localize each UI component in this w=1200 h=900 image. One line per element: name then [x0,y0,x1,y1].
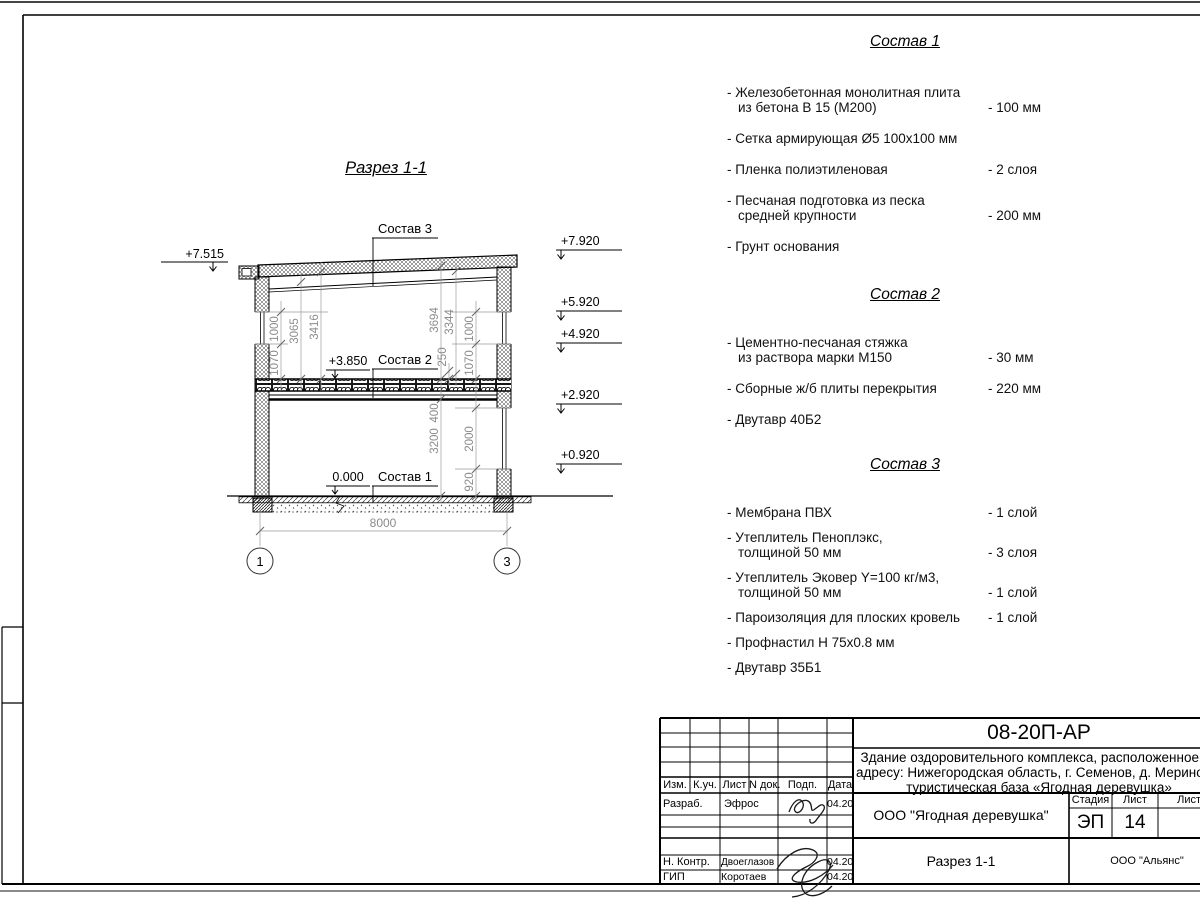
row-nkontr-name: Двоеглазов [721,855,778,870]
dim-400: 400 [429,403,441,422]
spec-item: - Грунт основания [727,239,1075,254]
dim-2000: 2000 [464,426,476,452]
spec2-list: - Цементно-песчаная стяжка из раствора м… [727,335,1075,427]
dim-1000-right: 1000 [464,316,476,342]
titleblock-section-title: Разрез 1-1 [853,838,1069,884]
level-7515: +7.515 [185,247,224,261]
dim-1000-left: 1000 [269,316,281,342]
label-sostav1: Состав 1 [378,469,432,484]
dim-3416: 3416 [309,314,321,340]
dim-250: 250 [437,347,449,366]
level-3850: +3.850 [329,354,368,368]
spec-item: - Пароизоляция для плоских кровель - 1 с… [727,610,1075,625]
roof-slab [239,255,517,292]
signature-gip [777,849,833,897]
col-data: Дата [827,777,853,793]
level-0000: 0.000 [332,470,363,484]
dim-920: 920 [464,472,476,491]
spec1-title: Состав 1 [795,33,1015,51]
spec-item: - Утеплитель Эковер Y=100 кг/м3, толщино… [727,570,1075,600]
titleblock-project-description: Здание оздоровительного комплекса, распо… [853,750,1200,795]
col-ndoc: N док. [749,777,778,793]
titleblock-stage-label: Стадия [1069,793,1112,808]
row-razrab-role: Разраб. [663,793,719,815]
drawing-sheet: 1000 1070 3065 3416 3694 3344 250 1000 1… [0,0,1200,900]
dim-3344: 3344 [444,309,456,335]
dim-span-8000: 8000 [370,516,397,530]
axis-1: 1 [256,554,263,569]
spec-item: - Двутавр 35Б1 [727,660,1075,675]
dim-3694: 3694 [429,307,441,333]
col-podp: Подп. [778,777,827,793]
spec-item: - Железобетонная монолитная плита из бет… [727,85,1075,115]
titleblock-sheet-number: 14 [1112,808,1158,838]
row-razrab-date: 04.20 [827,793,853,815]
drawing-title: Разрез 1-1 [328,159,444,178]
spec-item: - Профнастил Н 75х0.8 мм [727,635,1075,650]
ground-slab [227,496,613,513]
row-gip-date: 04.20 [827,870,853,884]
level-4920: +4.920 [561,327,600,341]
axis-bubbles: 1 3 [247,548,520,574]
level-5920: +5.920 [561,295,600,309]
row-nkontr-role: Н. Контр. [663,855,719,870]
spec-item: - Сборные ж/б плиты перекрытия - 220 мм [727,381,1075,396]
spec-item: - Двутавр 40Б2 [727,412,1075,427]
titleblock-stage-value: ЭП [1069,808,1112,838]
spec-item: - Пленка полиэтиленовая - 2 слоя [727,162,1075,177]
label-sostav3: Состав 3 [378,221,432,236]
col-kuch: К.уч. [690,777,720,793]
spec-item: - Сетка армирующая Ø5 100х100 мм [727,131,1075,146]
spec2-title: Состав 2 [795,286,1015,304]
dim-3200: 3200 [429,428,441,454]
section-drawing: 1000 1070 3065 3416 3694 3344 250 1000 1… [0,0,680,620]
titleblock-sheets-label: Листов [1158,793,1200,808]
spec1-list: - Железобетонная монолитная плита из бет… [727,85,1075,254]
row-gip-role: ГИП [663,870,719,884]
spec-item: - Цементно-песчаная стяжка из раствора м… [727,335,1075,365]
axis-3: 3 [503,554,510,569]
dim-1070-right: 1070 [464,350,476,376]
row-nkontr-date: 04.20 [827,855,853,870]
row-razrab-name: Эфрос [724,793,777,815]
level-7920: +7.920 [561,234,600,248]
level-0920: +0.920 [561,448,600,462]
titleblock-sheet-label: Лист [1112,793,1158,808]
col-list: Лист [720,777,749,793]
level-2920: +2.920 [561,388,600,402]
col-izm: Изм. [660,777,690,793]
dim-1070-left: 1070 [269,350,281,376]
spec3-list: - Мембрана ПВХ - 1 слой - Утеплитель Пен… [727,505,1075,675]
row-gip-name: Коротаев [721,870,778,884]
signature-razrab [789,800,824,823]
spec-item: - Песчаная подготовка из песка средней к… [727,193,1075,223]
spec3-title: Состав 3 [795,456,1015,474]
spec-item: - Мембрана ПВХ - 1 слой [727,505,1075,520]
dim-3065: 3065 [289,318,301,344]
titleblock-doc-number: 08-20П-АР [853,719,1200,747]
label-sostav2: Состав 2 [378,352,432,367]
titleblock-org: ООО "Ягодная деревушка" [853,793,1069,838]
spec-item: - Утеплитель Пеноплэкс, толщиной 50 мм -… [727,530,1075,560]
titleblock-contractor: ООО "Альянс" [1069,838,1200,884]
